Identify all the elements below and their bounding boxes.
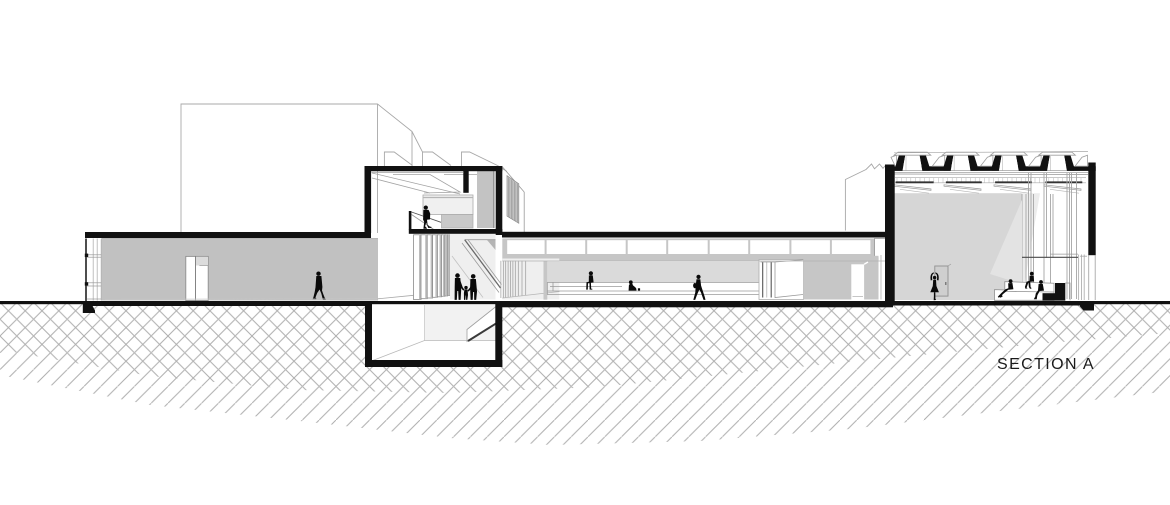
svg-text:SECTION A: SECTION A <box>997 356 1095 373</box>
